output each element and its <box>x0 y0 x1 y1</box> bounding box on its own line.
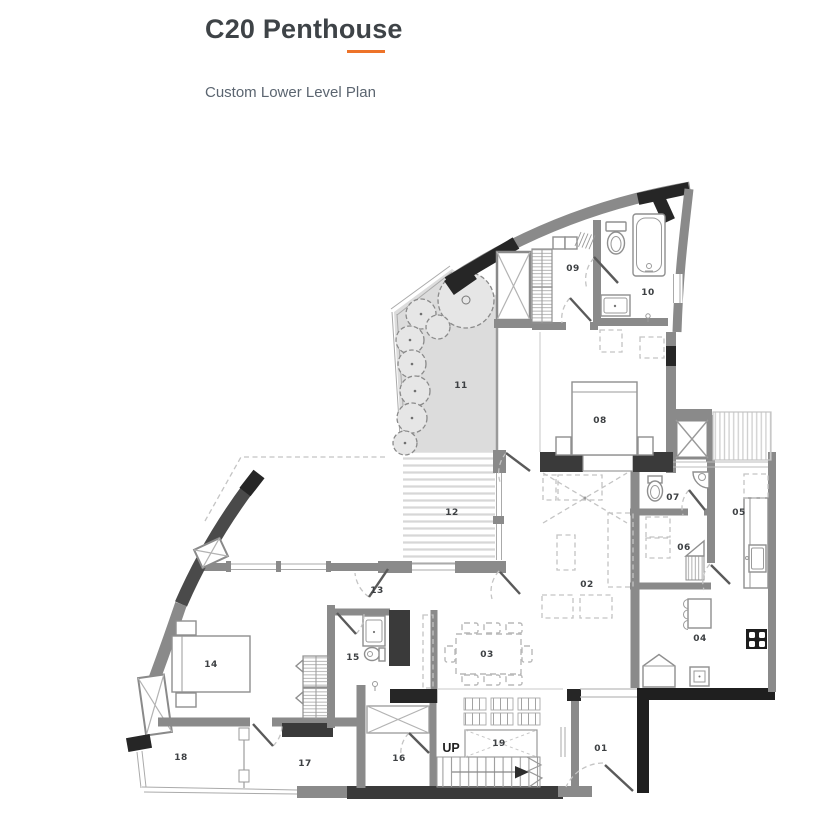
room-label-17: 17 <box>298 759 312 769</box>
floor-plan: 01020304050607080910111213141516171819 U… <box>0 0 828 828</box>
room-label-12: 12 <box>445 508 459 518</box>
room-label-07: 07 <box>666 493 680 503</box>
toilet-15-icon <box>365 648 386 662</box>
closet-rack-14 <box>296 656 329 719</box>
toilet-07-icon <box>648 476 663 501</box>
room-label-16: 16 <box>392 754 406 764</box>
exterior-stair <box>713 412 771 460</box>
room-label-19: 19 <box>492 739 506 749</box>
room-label-01: 01 <box>594 744 608 754</box>
floorplan-page: C20 Penthouse Custom Lower Level Plan <box>0 0 828 828</box>
kitchen-counter-icon <box>744 498 768 588</box>
shower-15-icon <box>373 682 378 692</box>
room-label-08: 08 <box>593 416 607 426</box>
room-label-09: 09 <box>566 264 580 274</box>
bathtub-icon <box>633 214 665 276</box>
room-label-04: 04 <box>693 634 707 644</box>
vanity-10-icon <box>601 295 650 322</box>
corner-sink-07-icon <box>693 472 709 488</box>
room-label-18: 18 <box>174 753 188 763</box>
room-label-11: 11 <box>454 381 468 391</box>
room-label-13: 13 <box>370 586 384 596</box>
stove-icon <box>746 629 767 649</box>
room-label-14: 14 <box>204 660 218 670</box>
room-label-15: 15 <box>346 653 360 663</box>
storage-16 <box>367 706 429 733</box>
room-label-02: 02 <box>580 580 594 590</box>
up-label: UP <box>442 741 459 755</box>
room-label-06: 06 <box>677 543 691 553</box>
room-label-10: 10 <box>641 288 655 298</box>
island-04-icon <box>684 599 712 630</box>
vanity-15-icon <box>363 616 385 646</box>
room-label-03: 03 <box>480 650 494 660</box>
pantry-nook <box>643 655 675 688</box>
room-label-05: 05 <box>732 508 746 518</box>
appliance-icon <box>690 667 709 686</box>
terrace-garden <box>391 266 497 563</box>
toilet-10-icon <box>606 222 626 254</box>
living-furniture-02 <box>542 473 633 618</box>
